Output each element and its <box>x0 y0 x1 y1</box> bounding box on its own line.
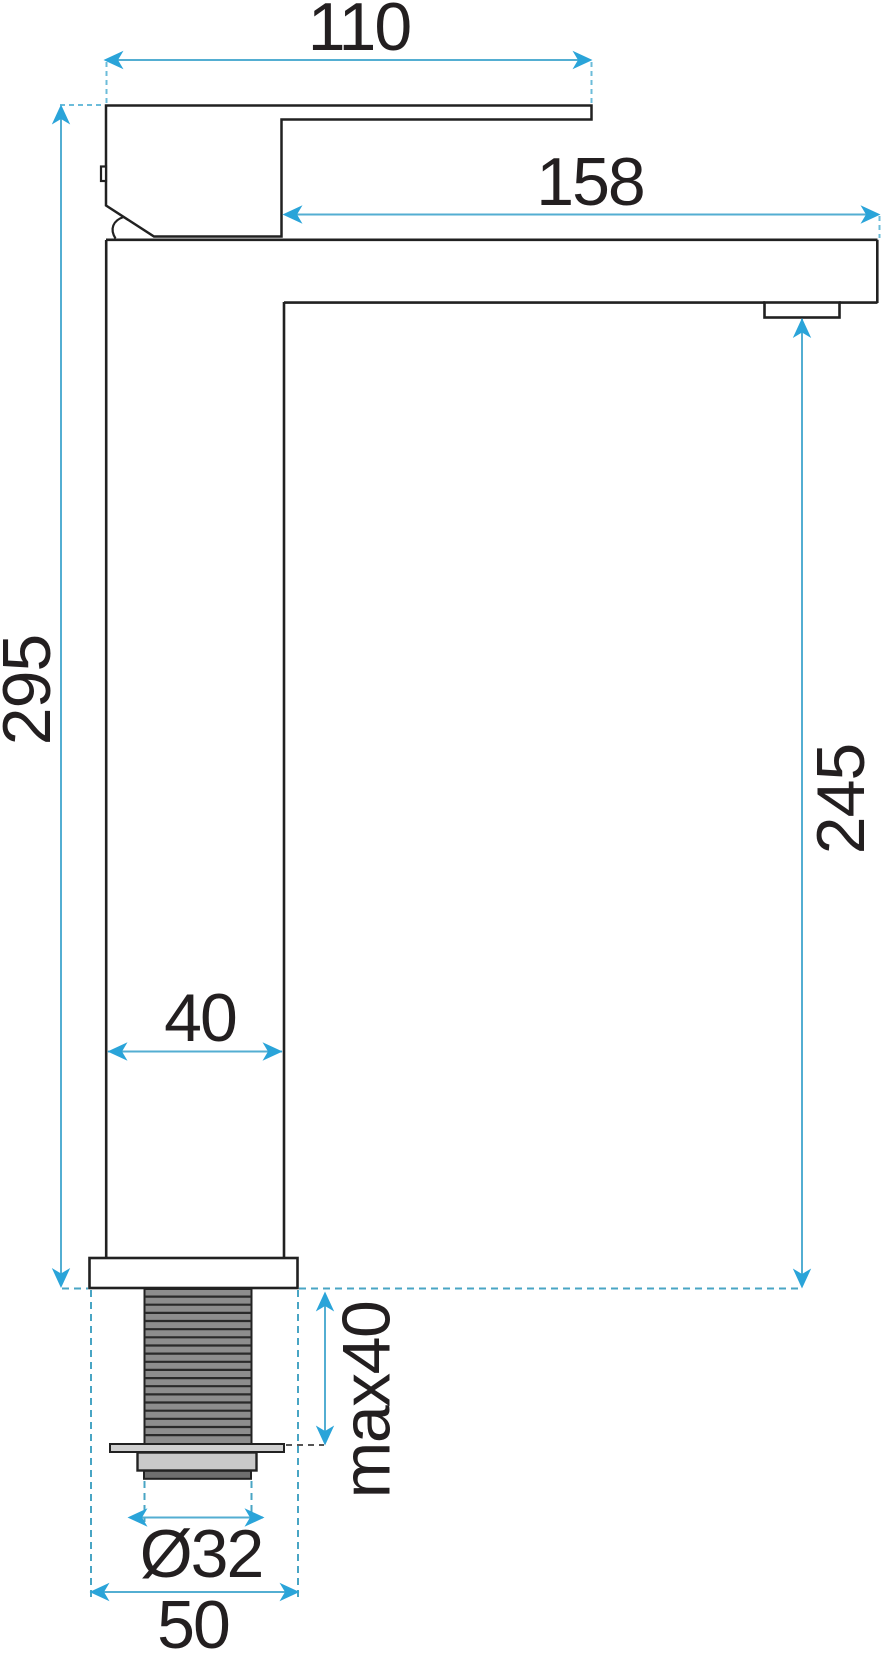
svg-text:158: 158 <box>536 144 643 220</box>
svg-text:245: 245 <box>803 744 879 854</box>
svg-text:Ø32: Ø32 <box>140 1516 263 1592</box>
svg-text:40: 40 <box>164 980 236 1056</box>
svg-text:50: 50 <box>157 1587 229 1653</box>
svg-text:110: 110 <box>308 0 411 65</box>
svg-text:max40: max40 <box>329 1302 405 1499</box>
svg-text:295: 295 <box>0 635 65 745</box>
